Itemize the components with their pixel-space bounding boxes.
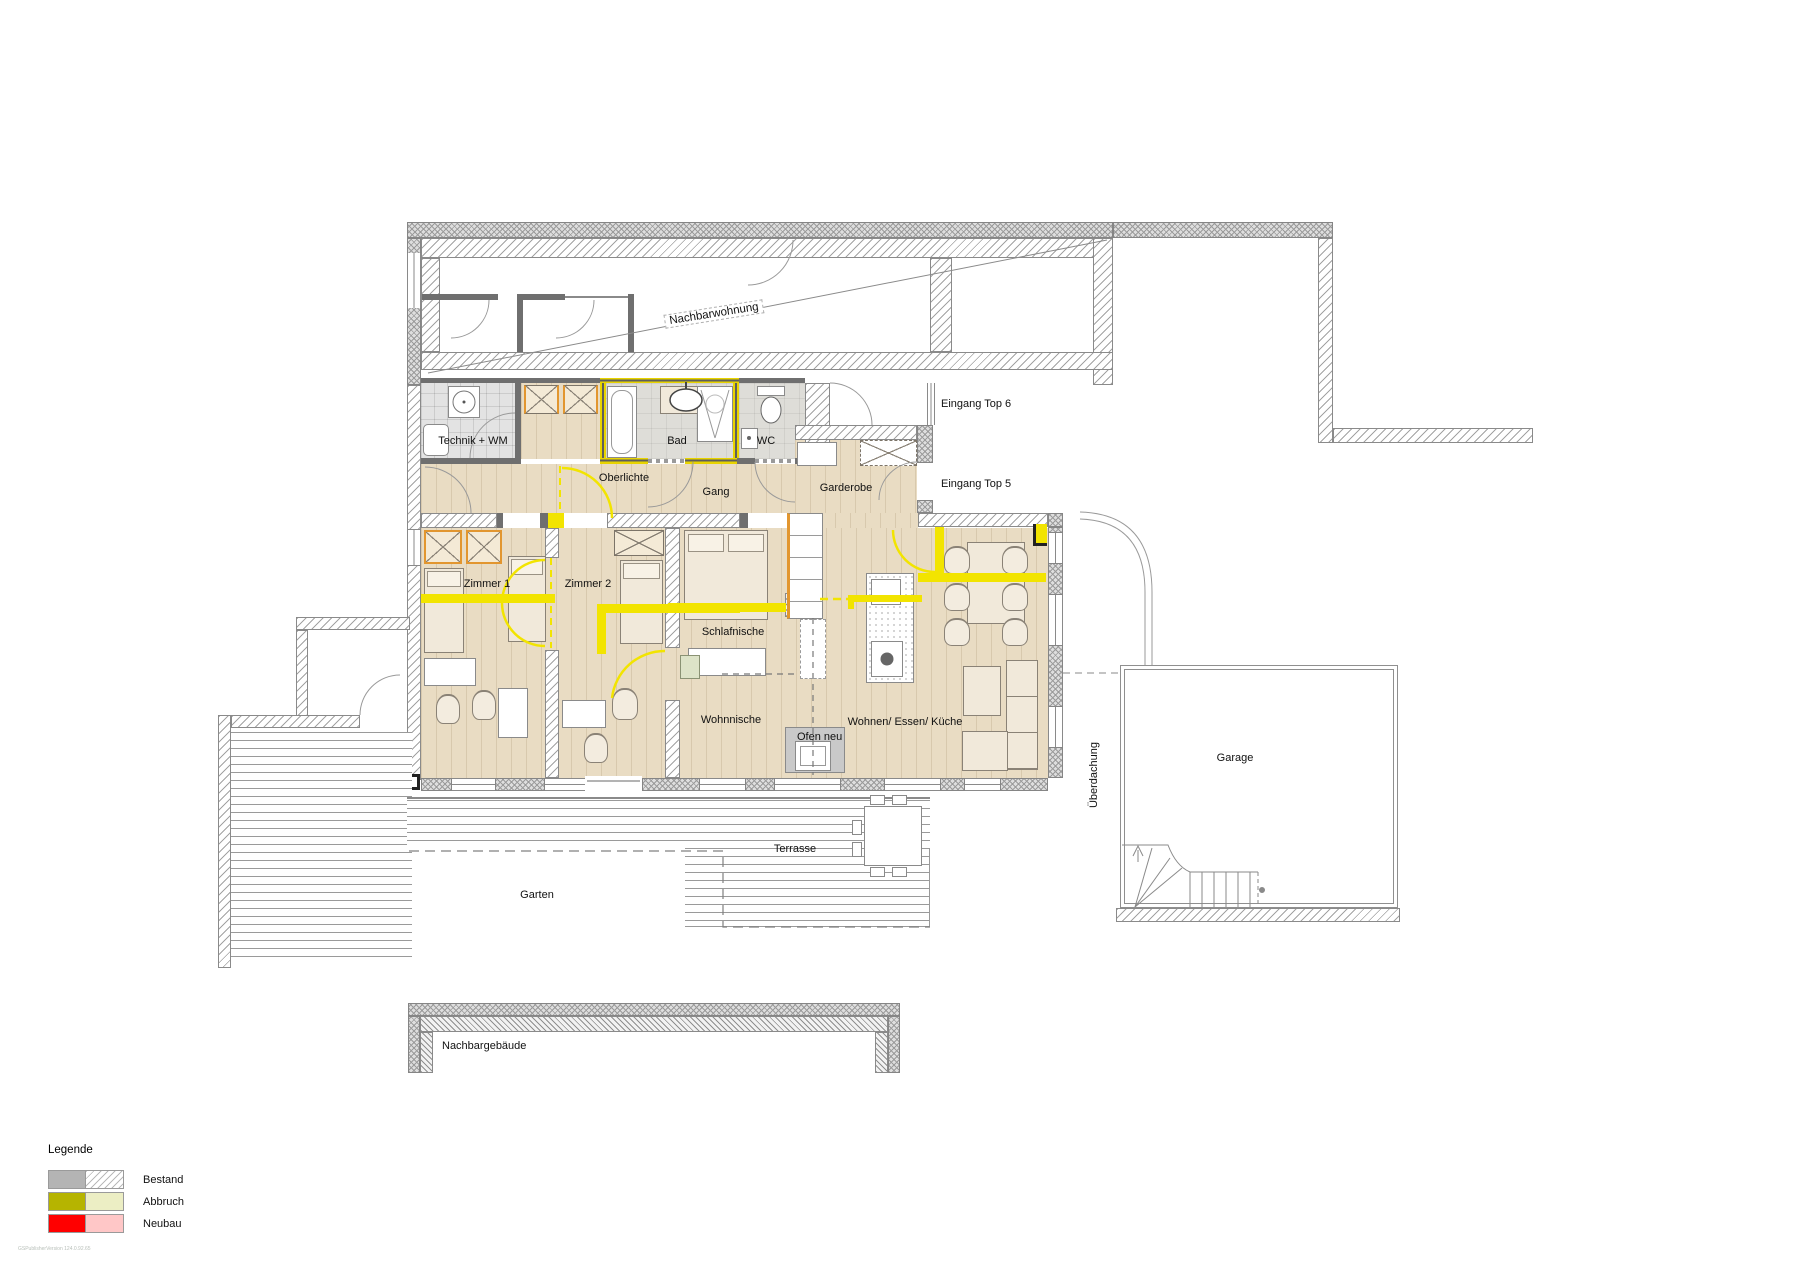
- wardrobe: [614, 530, 664, 556]
- bed: [424, 568, 464, 653]
- legend-swatch-abbruch-solid: [48, 1192, 86, 1211]
- outdoor-chair: [870, 795, 885, 805]
- wall-segment: [420, 1032, 433, 1073]
- chair: [436, 694, 460, 724]
- legend-label: Neubau: [143, 1218, 182, 1230]
- threshold: [755, 459, 793, 463]
- wall-segment: [1318, 238, 1333, 443]
- window: [407, 530, 421, 565]
- floor-plan: Nachbarwohnung Technik + WM Bad WC Oberl…: [0, 0, 1800, 1273]
- label-gang: Gang: [703, 486, 730, 498]
- plant-box: [680, 655, 700, 679]
- wall-segment: [408, 1003, 900, 1016]
- demolition-wall: [600, 458, 648, 464]
- label-eingang-top6: Eingang Top 6: [941, 398, 1011, 410]
- wall-segment: [422, 294, 498, 300]
- wall-segment: [296, 630, 308, 727]
- outdoor-chair: [852, 842, 862, 857]
- garage-walls: [1120, 665, 1398, 908]
- window: [927, 383, 935, 425]
- side-deck: [231, 732, 412, 960]
- threshold: [648, 459, 685, 463]
- wall-segment: [495, 778, 545, 791]
- wall-segment: [421, 258, 440, 352]
- window: [1048, 595, 1063, 645]
- wall-segment: [665, 700, 680, 778]
- wall-segment: [421, 378, 600, 383]
- wall-segment: [421, 513, 497, 528]
- wall-segment: [917, 425, 933, 463]
- wall-segment: [1048, 747, 1063, 778]
- wall-segment: [875, 1032, 888, 1073]
- demolition-wall-band: [848, 595, 922, 602]
- chair: [612, 688, 638, 720]
- label-eingang-top5: Eingang Top 5: [941, 478, 1011, 490]
- tall-cabinet: [787, 513, 823, 619]
- label-wc: WC: [757, 435, 775, 447]
- chair: [944, 583, 970, 611]
- legend-label: Abbruch: [143, 1196, 184, 1208]
- toilet-tank: [757, 386, 785, 396]
- wall-segment: [517, 294, 565, 300]
- demolition-wall-band: [935, 527, 944, 577]
- small-sink: [741, 428, 758, 449]
- wardrobe: [797, 442, 837, 466]
- label-nachbarwohnung: Nachbarwohnung: [663, 299, 764, 328]
- wall-segment: [421, 458, 521, 464]
- oven: [795, 741, 831, 771]
- window: [407, 253, 421, 308]
- wall-segment: [1333, 428, 1533, 443]
- wall-segment: [737, 458, 755, 464]
- wall-segment: [1048, 563, 1063, 595]
- wall-segment: [940, 778, 965, 791]
- desk: [562, 700, 606, 728]
- chair: [472, 690, 496, 720]
- demolition-wall: [600, 383, 606, 459]
- label-garderobe: Garderobe: [820, 482, 873, 494]
- label-garage: Garage: [1217, 752, 1254, 764]
- bathtub: [607, 386, 637, 458]
- wall-segment: [420, 1016, 888, 1032]
- wall-segment: [918, 513, 1048, 527]
- wardrobe-cabinet: [563, 385, 598, 414]
- outdoor-table: [864, 806, 922, 866]
- wall-segment: [642, 778, 700, 791]
- label-garten: Garten: [520, 889, 554, 901]
- side-table: [498, 688, 528, 738]
- label-technik: Technik + WM: [438, 435, 507, 447]
- chair: [944, 546, 970, 574]
- wall-segment: [665, 528, 680, 648]
- bed: [620, 560, 663, 644]
- wall-segment: [740, 513, 748, 528]
- demolition-wall-band: [918, 573, 1046, 582]
- wall-segment: [407, 385, 421, 530]
- demolition-wall-band: [668, 603, 786, 612]
- wall-segment: [795, 425, 917, 440]
- wall-segment: [1113, 222, 1333, 238]
- window: [1048, 707, 1063, 747]
- door-threshold: [585, 783, 642, 786]
- wall-segment: [408, 1016, 420, 1073]
- label-terrasse: Terrasse: [774, 843, 816, 855]
- wall-segment: [545, 650, 559, 778]
- label-zimmer1: Zimmer 1: [464, 578, 510, 590]
- wall-segment: [1048, 513, 1063, 527]
- label-wohnnische: Wohnnische: [701, 714, 761, 726]
- sofa: [1006, 660, 1038, 770]
- new-wall-corner: [1033, 524, 1047, 546]
- outdoor-chair: [870, 867, 885, 877]
- window: [885, 778, 940, 791]
- sofa: [962, 731, 1008, 771]
- wall-segment: [628, 294, 634, 352]
- legend-row-neubau: Neubau: [48, 1214, 184, 1233]
- legend-label: Bestand: [143, 1174, 183, 1186]
- wall-segment: [565, 296, 628, 298]
- armchair: [963, 666, 1001, 716]
- demolition-wall: [600, 378, 739, 383]
- chair: [1002, 546, 1028, 574]
- shower: [697, 386, 733, 442]
- window: [1048, 533, 1063, 563]
- wall-segment: [231, 715, 360, 728]
- desk: [424, 658, 476, 686]
- legend-swatch-bestand-hatch: [86, 1170, 124, 1189]
- wardrobe: [466, 530, 502, 564]
- legend-swatch-abbruch-light: [86, 1192, 124, 1211]
- label-bad: Bad: [667, 435, 687, 447]
- wall-segment: [888, 1016, 900, 1073]
- wall-segment: [607, 513, 740, 528]
- legend-swatch-neubau-solid: [48, 1214, 86, 1233]
- wall-segment: [421, 778, 452, 791]
- wall-segment: [545, 528, 559, 558]
- label-wohnen-essen-kueche: Wohnen/ Essen/ Küche: [848, 716, 963, 728]
- demolition-door-posts: [548, 513, 564, 528]
- chair: [1002, 583, 1028, 611]
- oven-niche: [800, 619, 826, 679]
- washing-machine: [448, 386, 480, 418]
- demolition-wall-band: [421, 594, 555, 603]
- watermark: GSPublisherVersion 124.0.92.65: [18, 1246, 91, 1252]
- chair: [944, 618, 970, 646]
- wall-segment: [1116, 908, 1400, 922]
- window: [545, 778, 585, 791]
- wall-segment: [739, 378, 805, 383]
- legend-row-bestand: Bestand: [48, 1170, 184, 1189]
- window: [700, 778, 745, 791]
- window: [775, 778, 840, 791]
- chair: [584, 733, 608, 763]
- label-zimmer2: Zimmer 2: [565, 578, 611, 590]
- wardrobe-cabinet: [524, 385, 559, 414]
- wall-segment: [515, 383, 521, 459]
- wall-segment: [917, 500, 933, 513]
- outdoor-chair: [852, 820, 862, 835]
- outdoor-chair: [892, 867, 907, 877]
- wall-segment: [745, 778, 775, 791]
- demolition-wall: [733, 383, 739, 459]
- wall-segment: [497, 513, 503, 528]
- chair: [1002, 618, 1028, 646]
- outdoor-chair: [892, 795, 907, 805]
- wall-segment: [517, 300, 523, 352]
- wall-segment: [218, 715, 231, 968]
- legend-title: Legende: [48, 1144, 184, 1156]
- label-oberlichte: Oberlichte: [599, 472, 649, 484]
- label-ueberdachung: Überdachung: [1088, 742, 1100, 808]
- wardrobe: [860, 440, 917, 466]
- wall-segment: [1000, 778, 1048, 791]
- wall-segment: [930, 258, 952, 352]
- wall-segment: [296, 617, 410, 630]
- wardrobe: [424, 530, 462, 564]
- demolition-wall: [685, 458, 737, 464]
- label-schlafnische: Schlafnische: [702, 626, 764, 638]
- legend-swatch-bestand-solid: [48, 1170, 86, 1189]
- wall-segment: [421, 238, 1113, 258]
- island-sink: [871, 641, 903, 677]
- legend-row-abbruch: Abbruch: [48, 1192, 184, 1211]
- wall-segment: [421, 352, 1113, 370]
- demolition-wall-band: [848, 595, 854, 609]
- edge-line: [407, 797, 930, 799]
- wall-segment: [407, 222, 1113, 238]
- wall-segment: [1048, 645, 1063, 707]
- legend: Legende Bestand Abbruch Neubau: [48, 1144, 184, 1236]
- wall-segment: [840, 778, 885, 791]
- label-ofen-neu: Ofen neu: [797, 731, 842, 743]
- window: [965, 778, 1000, 791]
- legend-swatch-neubau-light: [86, 1214, 124, 1233]
- wall-segment: [540, 513, 548, 528]
- window: [452, 778, 495, 791]
- label-nachbargebaeude: Nachbargebäude: [442, 1040, 526, 1052]
